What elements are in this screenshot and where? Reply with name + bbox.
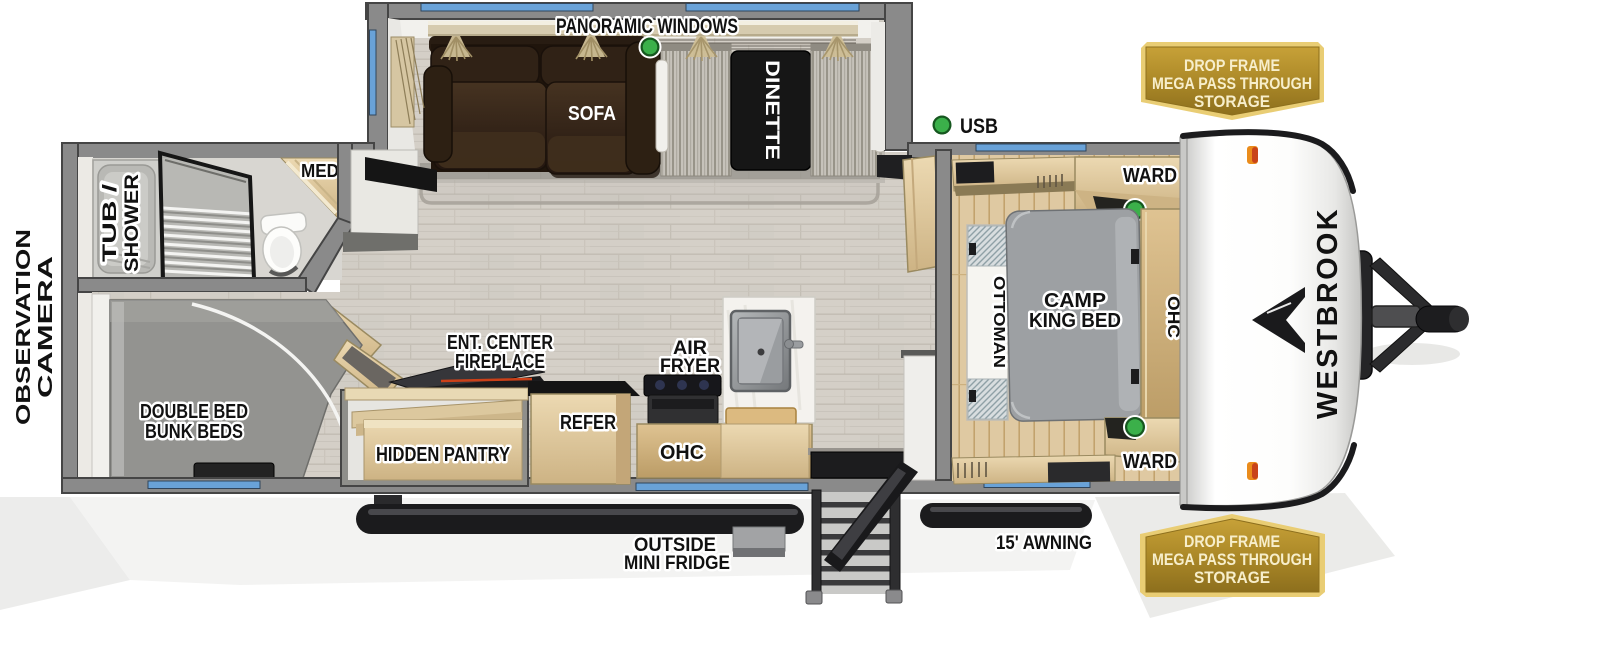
svg-text:15' AWNING: 15' AWNING — [996, 532, 1092, 554]
svg-text:MED: MED — [301, 160, 339, 181]
svg-text:DROP FRAME: DROP FRAME — [1184, 533, 1280, 551]
svg-text:OHC: OHC — [660, 441, 704, 464]
svg-text:KING BED: KING BED — [1029, 309, 1121, 332]
svg-text:TUB /: TUB / — [100, 183, 121, 262]
svg-text:MINI FRIDGE: MINI FRIDGE — [624, 552, 730, 574]
svg-text:DROP FRAME: DROP FRAME — [1184, 57, 1280, 75]
svg-text:WESTBROOK: WESTBROOK — [1312, 207, 1344, 419]
svg-text:SHOWER: SHOWER — [122, 174, 143, 272]
svg-text:PANORAMIC WINDOWS: PANORAMIC WINDOWS — [556, 14, 738, 38]
svg-text:DINETTE: DINETTE — [761, 60, 782, 160]
svg-text:WARD: WARD — [1123, 451, 1177, 473]
svg-text:FIREPLACE: FIREPLACE — [455, 350, 545, 373]
svg-text:HIDDEN PANTRY: HIDDEN PANTRY — [376, 443, 510, 466]
svg-text:BUNK BEDS: BUNK BEDS — [145, 420, 243, 443]
svg-text:MEGA PASS THROUGH: MEGA PASS THROUGH — [1152, 75, 1312, 93]
svg-text:WARD: WARD — [1123, 165, 1177, 187]
svg-text:STORAGE: STORAGE — [1194, 569, 1270, 587]
svg-text:REFER: REFER — [560, 411, 616, 434]
svg-text:SOFA: SOFA — [568, 103, 616, 125]
svg-text:FRYER: FRYER — [660, 355, 720, 377]
svg-text:USB: USB — [960, 115, 998, 138]
svg-text:OTTOMAN: OTTOMAN — [990, 276, 1007, 368]
svg-text:STORAGE: STORAGE — [1194, 93, 1270, 111]
svg-text:MEGA PASS THROUGH: MEGA PASS THROUGH — [1152, 551, 1312, 569]
svg-text:CAMERA: CAMERA — [35, 256, 57, 398]
svg-text:OBSERVATION: OBSERVATION — [13, 229, 35, 425]
